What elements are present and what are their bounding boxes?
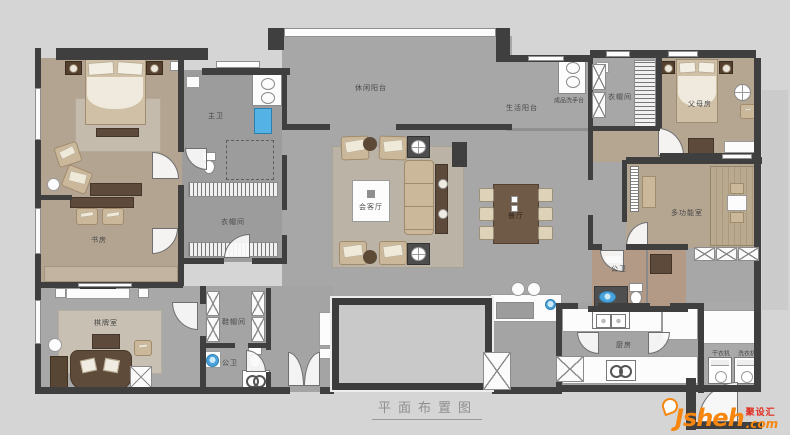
kitchen-double-sink xyxy=(592,311,630,329)
plant-table xyxy=(407,136,430,158)
room-label-bath-right: 公卫 xyxy=(611,264,627,274)
tea-table xyxy=(727,195,747,211)
double-washbasin xyxy=(252,74,282,106)
wardrobe-unit xyxy=(251,291,265,316)
daybed-seat xyxy=(102,208,124,225)
pillow xyxy=(698,61,716,73)
toilet xyxy=(629,283,643,305)
wall-segment xyxy=(282,155,287,210)
balcony-window xyxy=(284,28,496,37)
building-edge xyxy=(762,90,788,310)
sofa-console xyxy=(435,164,448,234)
room-label-dining: 餐厅 xyxy=(508,211,524,221)
cabinet xyxy=(319,348,331,359)
wall-segment xyxy=(56,48,208,60)
laundry-cabinet xyxy=(702,310,758,344)
coffee-table-game xyxy=(92,334,120,349)
railing-panel xyxy=(716,247,737,261)
wall-segment xyxy=(588,215,593,245)
chair xyxy=(134,340,152,356)
dining-chair xyxy=(479,188,494,202)
window xyxy=(528,56,564,61)
wall-segment xyxy=(588,126,660,131)
wall-segment xyxy=(178,58,184,152)
bed-throw xyxy=(87,77,143,109)
wall-segment xyxy=(252,258,285,264)
wall-segment xyxy=(754,58,761,164)
wall-segment xyxy=(205,343,235,348)
round-table xyxy=(734,84,751,101)
plant-table xyxy=(407,243,430,265)
bath-shelf xyxy=(186,76,200,88)
window xyxy=(668,51,698,57)
nightstand xyxy=(146,61,163,75)
armchair xyxy=(379,241,407,265)
dining-chair xyxy=(479,226,494,240)
wall-segment xyxy=(282,68,287,130)
bar-stool xyxy=(511,282,525,296)
wall-segment xyxy=(396,124,512,130)
wardrobe-unit xyxy=(592,92,606,118)
piano xyxy=(630,166,639,212)
daybed-seat xyxy=(76,208,98,225)
pouf xyxy=(363,137,377,151)
side-table xyxy=(48,338,62,352)
shaft xyxy=(556,356,584,382)
wall-segment xyxy=(754,164,761,248)
armchair xyxy=(379,136,408,161)
wall-segment xyxy=(178,185,184,286)
wall-segment xyxy=(40,195,72,200)
window xyxy=(35,88,41,140)
label-washer: 洗衣机 xyxy=(738,349,756,358)
wall-segment xyxy=(268,28,284,50)
dining-chair xyxy=(538,207,553,221)
window xyxy=(606,51,630,57)
window xyxy=(216,61,260,68)
watermark-suffix: 聚设汇 .com xyxy=(746,409,778,430)
tv-console-master xyxy=(90,183,142,196)
piano-bench xyxy=(642,176,656,208)
room-label-bath-entry: 公卫 xyxy=(222,358,238,368)
pillow xyxy=(88,61,115,76)
room-label-parents-room: 父母房 xyxy=(688,99,712,109)
room-label-multi-room: 多功能室 xyxy=(671,208,703,218)
window xyxy=(78,283,132,287)
wall-segment xyxy=(754,248,761,392)
wardrobe-unit xyxy=(206,317,220,342)
wall-segment xyxy=(626,244,688,250)
pillow xyxy=(117,61,144,76)
dining-chair xyxy=(538,188,553,202)
nightstand xyxy=(661,61,675,74)
balcony-step xyxy=(506,128,590,131)
room-label-game-room: 棋牌室 xyxy=(94,318,118,328)
wall-niche xyxy=(138,288,149,298)
pouf xyxy=(363,250,377,264)
floor-cushion xyxy=(730,212,744,223)
wardrobe-study xyxy=(70,197,134,208)
pillow xyxy=(679,61,697,73)
bar-stool xyxy=(527,282,541,296)
washstand-unit xyxy=(558,58,586,94)
dining-chair xyxy=(479,207,494,221)
wall-segment xyxy=(248,343,267,348)
window xyxy=(35,208,41,254)
nightstand xyxy=(719,61,733,74)
shower-mat xyxy=(650,254,672,274)
wall-segment xyxy=(560,385,702,392)
watermark-tld: .com xyxy=(746,418,778,430)
nightstand xyxy=(65,61,82,75)
shaft xyxy=(483,352,511,390)
wall-segment xyxy=(266,288,271,350)
shower-glass xyxy=(254,108,272,134)
room-label-closet-left: 衣帽间 xyxy=(221,217,245,227)
dryer-machine xyxy=(708,357,732,384)
shower-area xyxy=(226,140,274,180)
coffee-table xyxy=(352,180,390,222)
elevator-core xyxy=(332,298,492,390)
railing-panel xyxy=(738,247,759,261)
wall-segment xyxy=(698,303,704,393)
wardrobe-unit xyxy=(592,64,606,90)
wardrobe-unit xyxy=(206,291,220,316)
bed-parents xyxy=(676,59,718,123)
island-sink xyxy=(545,299,556,310)
wall-segment xyxy=(266,372,271,392)
stove xyxy=(606,360,636,381)
column xyxy=(452,142,467,167)
wall-segment xyxy=(202,68,290,75)
dining-chair xyxy=(538,226,553,240)
wall-segment xyxy=(205,387,290,394)
room-label-study: 书房 xyxy=(91,235,107,245)
room-label-service-balcony: 生活阳台 xyxy=(506,103,538,113)
room-label-leisure-balcony: 休闲阳台 xyxy=(355,83,387,93)
room-label-washstand: 成品洗手台 xyxy=(554,96,584,105)
island-cooktop xyxy=(496,302,534,319)
room-label-kitchen: 厨房 xyxy=(616,340,632,350)
low-shelf xyxy=(724,141,756,153)
watermark-logo: Jsheh 聚设汇 .com xyxy=(662,398,778,430)
closet-hanger-rail xyxy=(634,60,656,128)
shower-screen xyxy=(646,250,648,308)
shoe-cabinet xyxy=(319,312,332,346)
room-label-living-room: 会客厅 xyxy=(359,202,383,212)
railing-panel xyxy=(694,247,715,261)
closet-hanger-rail xyxy=(188,182,278,197)
wall-segment xyxy=(560,303,578,309)
washbasin xyxy=(599,291,616,303)
wardrobe-unit xyxy=(251,317,265,342)
wall-segment xyxy=(284,124,330,130)
tableware xyxy=(511,196,518,203)
desk-study xyxy=(44,266,178,282)
page-title: 平面布置图 xyxy=(372,397,482,420)
wall-segment xyxy=(702,385,760,392)
tv-console-game xyxy=(66,288,130,299)
washbasin xyxy=(206,354,219,367)
window xyxy=(722,154,752,159)
wall-niche xyxy=(55,288,66,298)
wall-segment xyxy=(35,387,205,394)
mahjong-table xyxy=(130,366,152,388)
wall-segment xyxy=(588,306,688,312)
floor-plan-page: { "title": { "text": "平面布置图" }, "rooms":… xyxy=(0,0,790,435)
window xyxy=(35,300,41,344)
sofa xyxy=(404,160,434,235)
wall-segment xyxy=(656,58,662,128)
bed-master xyxy=(85,59,146,125)
sofa-game-room xyxy=(70,350,132,390)
wall-segment xyxy=(588,130,593,180)
side-table xyxy=(47,178,60,191)
floor-plan-canvas: 主卫 书房 衣帽间 休闲阳台 会客厅 生活阳台 成品洗手台 衣帽间 父母房 多功… xyxy=(0,0,790,435)
room-label-shoe-room: 鞋帽间 xyxy=(222,317,246,327)
room-label-closet-right: 衣帽间 xyxy=(608,92,632,102)
wall-segment xyxy=(622,160,627,222)
wall-segment xyxy=(182,258,224,264)
watermark-brand: Jsheh xyxy=(675,408,744,430)
label-dryer: 干衣机 xyxy=(712,349,730,358)
bed-bench xyxy=(96,128,139,137)
floor-cushion xyxy=(730,183,744,194)
room-label-master-bath: 主卫 xyxy=(208,111,224,121)
